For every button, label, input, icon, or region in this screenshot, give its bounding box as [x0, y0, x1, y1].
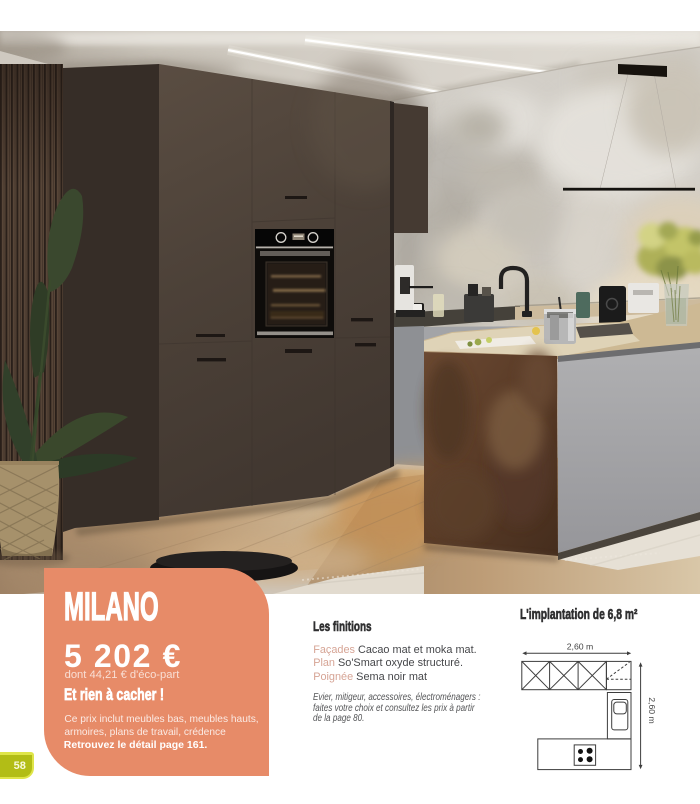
svg-text:2,60 m: 2,60 m	[647, 697, 657, 724]
svg-text:2,60 m: 2,60 m	[567, 641, 594, 651]
